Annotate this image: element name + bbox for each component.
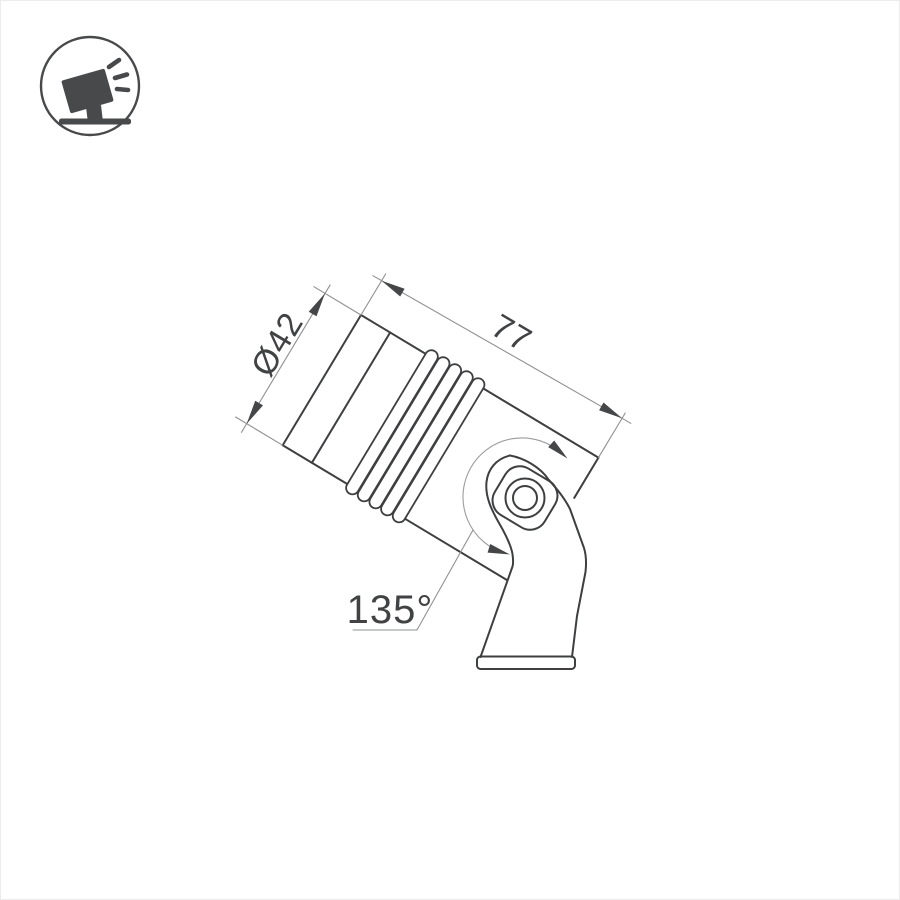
pivot-screw bbox=[513, 486, 537, 510]
extension-line bbox=[361, 274, 386, 315]
angle-label: 135° bbox=[347, 588, 434, 632]
fin bbox=[344, 348, 440, 497]
dimension-arrow bbox=[599, 403, 622, 419]
bracket-left-outline bbox=[481, 456, 514, 658]
body-rear-face bbox=[574, 458, 598, 498]
drawing-page: Ø42 77 135° bbox=[0, 0, 900, 900]
luminaire-body bbox=[279, 309, 602, 594]
dimension-arrow bbox=[309, 293, 325, 316]
bracket-base-plate bbox=[477, 657, 575, 670]
dimension-angle: 135° bbox=[347, 530, 473, 632]
extension-line bbox=[598, 413, 625, 458]
fin bbox=[367, 362, 463, 511]
body-bottom-edge bbox=[283, 445, 508, 580]
rotation-arrow-upper bbox=[548, 441, 567, 459]
rotation-arrow-lower bbox=[488, 544, 510, 555]
dimension-length: 77 bbox=[361, 274, 631, 458]
fin bbox=[390, 376, 486, 525]
diameter-label: Ø42 bbox=[244, 306, 311, 383]
spotlight-rays bbox=[109, 60, 128, 90]
mounting-bracket bbox=[477, 456, 586, 670]
body-bezel-line bbox=[312, 333, 390, 463]
technical-drawing: Ø42 77 135° bbox=[1, 1, 900, 900]
spotlight-base bbox=[59, 119, 131, 125]
dimension-arrow bbox=[247, 401, 263, 424]
spotlight-icon bbox=[59, 60, 131, 125]
spotlight-logo-badge bbox=[41, 37, 139, 135]
spotlight-head bbox=[61, 68, 114, 113]
pivot-boss bbox=[486, 460, 564, 536]
length-label: 77 bbox=[485, 307, 539, 360]
dimension-arrow bbox=[382, 281, 405, 297]
fin bbox=[379, 369, 475, 518]
pivot-outer-circle bbox=[506, 479, 545, 518]
fin bbox=[355, 355, 451, 504]
rotation-arc bbox=[463, 438, 568, 555]
